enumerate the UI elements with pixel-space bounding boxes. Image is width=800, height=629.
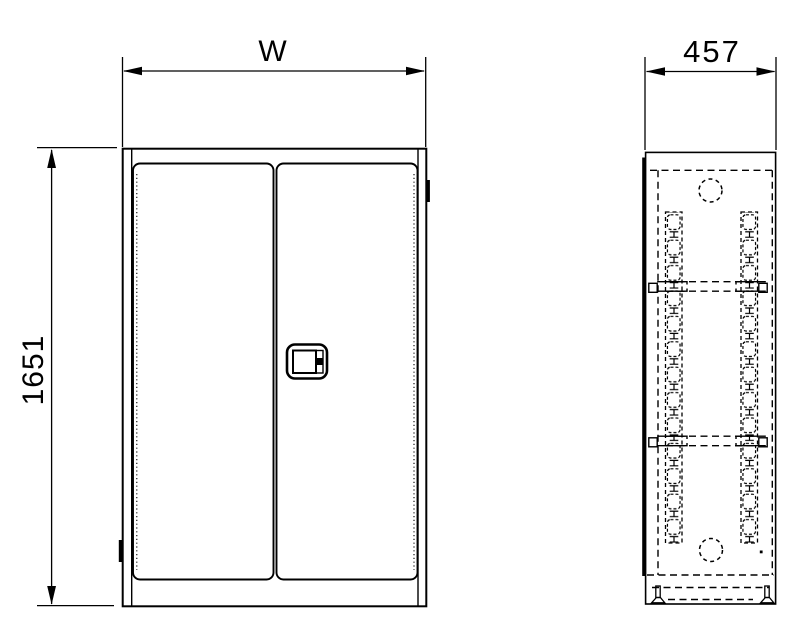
height-dimension: 1651 xyxy=(17,148,117,606)
hidden-hole-bottom xyxy=(700,539,723,562)
height-dimension-label: 1651 xyxy=(17,335,50,406)
width-dimension-label: W xyxy=(258,35,287,68)
width-dimension: W xyxy=(123,35,426,147)
leveling-foot-left xyxy=(652,586,665,603)
hinge-left xyxy=(119,540,123,562)
clip-tab xyxy=(649,283,657,292)
cabinet-body-outline xyxy=(123,149,427,607)
height-arrow-up xyxy=(47,149,56,168)
hidden-dot xyxy=(760,551,763,554)
technical-drawing-canvas: W 1651 457 xyxy=(0,0,800,629)
depth-arrow-right xyxy=(757,67,776,75)
leveling-foot-right xyxy=(761,586,774,603)
height-arrow-down xyxy=(47,586,56,605)
width-arrow-left xyxy=(123,67,142,75)
cabinet-dimension-drawing: W 1651 457 xyxy=(0,0,800,629)
handle-keyhole xyxy=(316,358,324,365)
depth-dimension-label: 457 xyxy=(683,34,741,69)
shelf-support-strip-left xyxy=(666,212,683,543)
foot-base xyxy=(761,598,774,603)
clip-tab xyxy=(649,438,657,447)
shelf-support-strip-right xyxy=(741,212,758,543)
front-view xyxy=(119,149,430,607)
strip-right-slots xyxy=(741,212,758,543)
hinge-right xyxy=(426,180,430,202)
handle-grip xyxy=(293,351,316,374)
side-view xyxy=(644,152,776,604)
depth-dimension: 457 xyxy=(645,34,776,150)
door-lock-handle xyxy=(287,345,327,379)
depth-arrow-left xyxy=(646,67,665,75)
strip-left-slots xyxy=(666,212,683,543)
left-door xyxy=(133,164,274,580)
width-arrow-right xyxy=(406,67,425,75)
foot-base xyxy=(652,598,665,603)
hidden-hole-top xyxy=(699,179,722,202)
right-door xyxy=(277,164,418,580)
